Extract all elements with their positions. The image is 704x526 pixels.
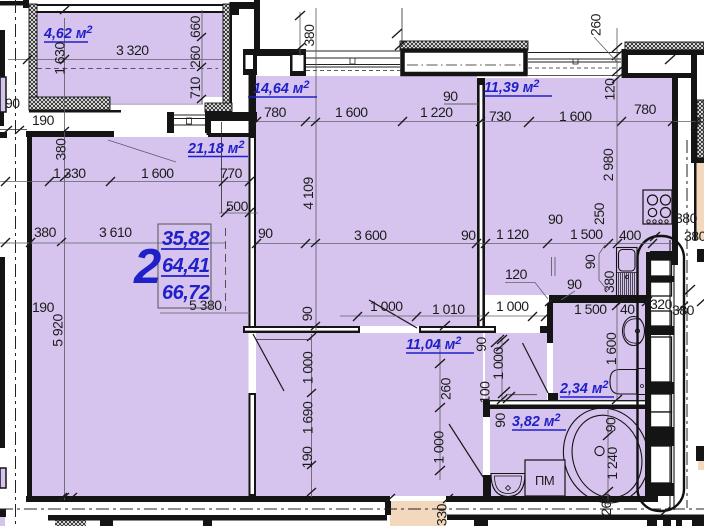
- svg-text:1 220: 1 220: [420, 104, 453, 120]
- svg-text:90: 90: [443, 88, 458, 104]
- svg-text:500: 500: [226, 198, 249, 214]
- svg-text:1 330: 1 330: [53, 165, 86, 181]
- svg-text:260: 260: [438, 377, 454, 400]
- svg-text:64,41: 64,41: [162, 255, 210, 277]
- svg-text:1 630: 1 630: [52, 42, 68, 75]
- svg-text:380: 380: [301, 24, 317, 47]
- svg-text:260: 260: [187, 45, 203, 68]
- svg-text:1 240: 1 240: [604, 447, 620, 480]
- svg-text:780: 780: [634, 101, 657, 117]
- svg-text:1 600: 1 600: [141, 165, 174, 181]
- svg-text:2 980: 2 980: [600, 148, 616, 181]
- svg-text:90: 90: [461, 227, 476, 243]
- svg-text:190: 190: [299, 446, 315, 469]
- svg-text:1 600: 1 600: [603, 332, 619, 365]
- svg-text:380: 380: [672, 302, 695, 318]
- svg-text:400: 400: [619, 227, 642, 243]
- svg-text:260: 260: [598, 493, 614, 516]
- svg-text:1 010: 1 010: [432, 301, 465, 317]
- svg-text:90: 90: [299, 306, 315, 321]
- svg-text:1 600: 1 600: [559, 108, 592, 124]
- svg-text:40: 40: [620, 301, 635, 317]
- svg-text:90: 90: [473, 337, 489, 352]
- svg-text:710: 710: [187, 76, 203, 99]
- svg-text:1 000: 1 000: [370, 298, 403, 314]
- svg-text:380: 380: [601, 270, 617, 293]
- svg-text:14,64 м2: 14,64 м2: [253, 79, 309, 97]
- svg-text:90: 90: [603, 417, 619, 432]
- svg-text:380: 380: [684, 228, 704, 244]
- svg-text:780: 780: [264, 104, 287, 120]
- svg-text:190: 190: [32, 112, 55, 128]
- svg-text:1 000: 1 000: [300, 351, 316, 384]
- svg-text:35,82: 35,82: [162, 228, 210, 250]
- svg-text:3,82 м2: 3,82 м2: [512, 412, 561, 430]
- svg-text:3 610: 3 610: [99, 224, 132, 240]
- svg-text:330: 330: [434, 503, 450, 526]
- svg-text:120: 120: [505, 266, 528, 282]
- svg-text:1 120: 1 120: [496, 226, 529, 242]
- svg-text:90: 90: [492, 413, 508, 428]
- svg-text:90: 90: [548, 211, 563, 227]
- svg-text:1 500: 1 500: [570, 226, 603, 242]
- svg-text:90: 90: [258, 225, 273, 241]
- svg-text:730: 730: [489, 108, 512, 124]
- svg-text:1 500: 1 500: [574, 301, 607, 317]
- svg-text:1 000: 1 000: [431, 431, 447, 464]
- svg-text:3 600: 3 600: [354, 227, 387, 243]
- svg-text:2,34 м2: 2,34 м2: [559, 379, 609, 397]
- svg-text:90: 90: [5, 95, 20, 111]
- svg-text:1 690: 1 690: [300, 401, 316, 434]
- svg-text:660: 660: [187, 15, 203, 38]
- svg-text:11,39 м2: 11,39 м2: [484, 78, 539, 96]
- svg-text:4,62 м2: 4,62 м2: [43, 24, 93, 42]
- svg-text:380: 380: [34, 224, 57, 240]
- svg-text:320: 320: [650, 296, 673, 312]
- svg-text:11,04 м2: 11,04 м2: [406, 335, 461, 353]
- svg-text:1 000: 1 000: [496, 298, 529, 314]
- svg-text:190: 190: [32, 299, 55, 315]
- svg-text:2: 2: [133, 240, 161, 294]
- svg-text:380: 380: [675, 210, 698, 226]
- svg-text:5 920: 5 920: [50, 314, 66, 347]
- svg-text:250: 250: [591, 202, 607, 225]
- svg-text:ПМ: ПМ: [535, 473, 554, 488]
- svg-text:90: 90: [582, 254, 598, 269]
- svg-text:1 000: 1 000: [490, 347, 506, 380]
- svg-text:1 600: 1 600: [335, 104, 368, 120]
- svg-text:120: 120: [602, 78, 618, 101]
- svg-text:66,72: 66,72: [162, 282, 210, 304]
- svg-text:4 109: 4 109: [300, 177, 316, 210]
- svg-text:21,18 м2: 21,18 м2: [187, 139, 244, 157]
- svg-text:260: 260: [588, 13, 604, 36]
- svg-text:100: 100: [477, 381, 493, 404]
- svg-text:770: 770: [220, 165, 243, 181]
- svg-text:90: 90: [567, 276, 582, 292]
- svg-text:380: 380: [53, 138, 69, 161]
- svg-text:3 320: 3 320: [116, 42, 149, 58]
